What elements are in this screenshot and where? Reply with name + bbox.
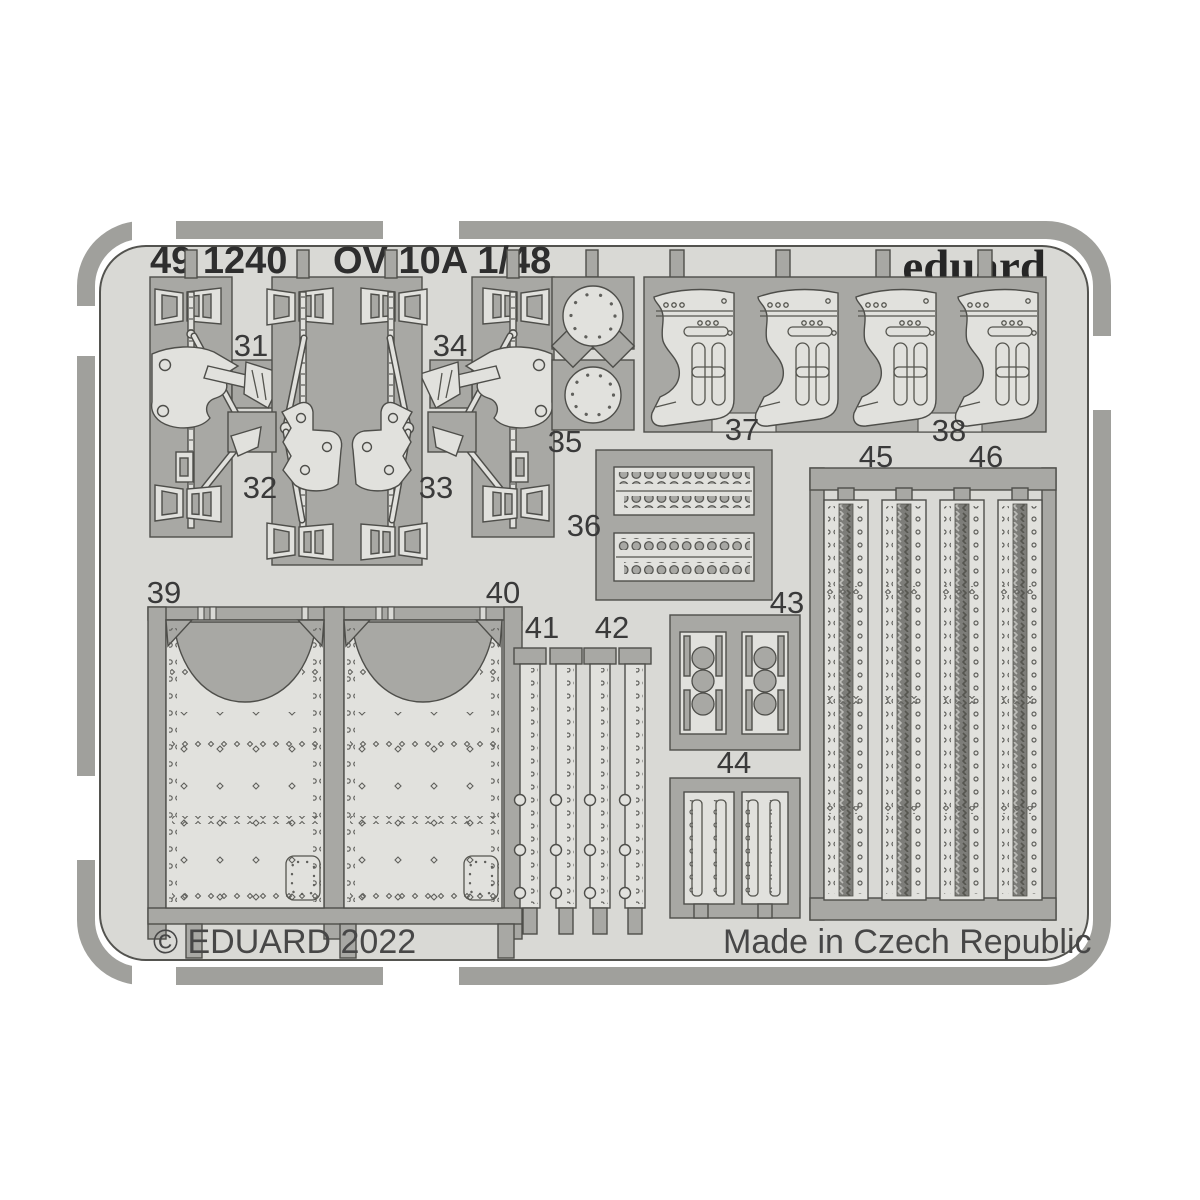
label-35: 35 (548, 424, 582, 459)
part-43-plates (670, 615, 800, 750)
label-45: 45 (859, 439, 893, 474)
part-44-plates (670, 778, 800, 918)
part-36-perforated-strips (596, 450, 772, 600)
label-41: 41 (525, 610, 559, 645)
label-31: 31 (234, 328, 268, 363)
label-46: 46 (969, 439, 1003, 474)
label-33: 33 (419, 470, 453, 505)
label-39: 39 (147, 575, 181, 610)
label-37: 37 (725, 412, 759, 447)
label-32: 32 (243, 470, 277, 505)
label-36: 36 (567, 508, 601, 543)
label-42: 42 (595, 610, 629, 645)
label-34: 34 (433, 328, 467, 363)
part-37-38-brackets (644, 250, 1046, 432)
label-44: 44 (717, 745, 751, 780)
label-38: 38 (932, 413, 966, 448)
origin-text: Made in Czech Republic (723, 923, 1092, 961)
part-39-40-panels (148, 607, 522, 958)
label-43: 43 (770, 585, 804, 620)
copyright-text: © EDUARD 2022 (153, 923, 416, 961)
fret-drawing: 49 1240 OV-10A 1/48 eduard (0, 0, 1200, 1200)
photoetch-fret-scan: 49 1240 OV-10A 1/48 eduard (0, 0, 1200, 1200)
fret-code: 49 1240 (150, 240, 287, 282)
part-35-discs (552, 250, 634, 430)
label-40: 40 (486, 575, 520, 610)
